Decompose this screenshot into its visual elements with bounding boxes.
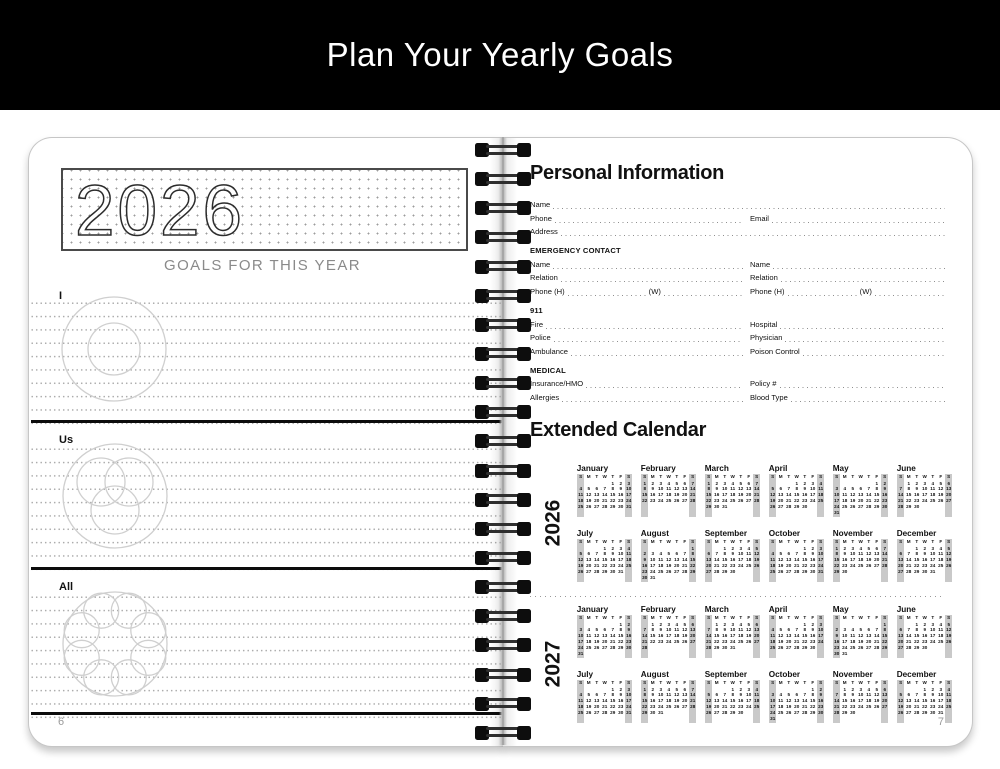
date-cell (753, 710, 761, 716)
date-cell: 30 (617, 710, 625, 716)
date-cell (929, 645, 937, 651)
concentric-circles-diagram (59, 294, 169, 404)
date-cell: 29 (609, 504, 617, 510)
date-cell (689, 575, 697, 581)
date-cell: 25 (577, 710, 585, 716)
date-cell (585, 651, 593, 657)
month-name: July (577, 529, 633, 538)
form-field: Police (530, 333, 750, 342)
spiral-tab-right (517, 434, 531, 448)
form-field: Phone (H)(W) (530, 287, 750, 296)
date-cell (753, 504, 761, 510)
date-cell: 28 (601, 504, 609, 510)
mini-month-june: JuneSMTWTFS12345678910111213141516171819… (897, 605, 953, 658)
week-row: 25262728293031 (577, 504, 633, 510)
write-in-line (568, 287, 647, 296)
write-in-line (553, 200, 945, 209)
spiral-wire (486, 559, 520, 562)
spiral-wire (486, 290, 520, 293)
mini-month-march: MarchSMTWTFS1234567891011121314151617181… (705, 605, 761, 658)
form-field: Relation (530, 273, 750, 282)
form-row: RelationRelation (530, 269, 945, 283)
spiral-wire (486, 268, 520, 271)
date-cell (865, 510, 873, 516)
write-in-line (664, 287, 743, 296)
spiral-loop (475, 405, 531, 420)
date-cell (673, 645, 681, 651)
week-row: 22232425262728 (641, 498, 697, 504)
week-row: 293031 (641, 710, 697, 716)
write-in-line (555, 214, 743, 223)
date-cell: 31 (577, 651, 585, 657)
date-cell: 29 (713, 645, 721, 651)
date-cell: 28 (641, 645, 649, 651)
field-label: Insurance/HMO (530, 379, 586, 388)
form-field: Email (750, 214, 945, 223)
date-cell: 29 (841, 710, 849, 716)
spiral-wire (486, 676, 520, 679)
date-cell: 31 (657, 710, 665, 716)
write-in-line (553, 260, 743, 269)
mini-month-june: JuneSMTWTFS12345678910111213141516171819… (897, 464, 953, 517)
page-number-right: 7 (938, 716, 944, 728)
spiral-tab-right (517, 347, 531, 361)
week-row: 2728293031 (897, 569, 953, 575)
spiral-wire (486, 378, 520, 381)
spiral-tab-right (517, 609, 531, 623)
date-cell: 31 (769, 716, 777, 722)
date-cell (737, 569, 745, 575)
date-cell (801, 716, 809, 722)
month-name: March (705, 464, 761, 473)
date-cell (657, 645, 665, 651)
date-cell: 30 (833, 651, 841, 657)
date-cell: 29 (609, 710, 617, 716)
week-row: 28293031 (705, 645, 761, 651)
mini-month-december: DecemberSMTWTFS1234567891011121314151617… (897, 670, 953, 723)
date-cell (665, 710, 673, 716)
spiral-wire (486, 239, 520, 242)
write-in-line (780, 379, 945, 388)
month-grid: SMTWTFS123456789101112131415161718192021… (897, 680, 953, 723)
week-row: 293031 (705, 504, 761, 510)
year-separator (530, 595, 945, 597)
date-cell (673, 575, 681, 581)
form-row: PolicePhysician (530, 329, 945, 343)
spiral-wire (486, 203, 520, 206)
field-label: Address (530, 227, 561, 236)
spiral-wire (486, 436, 520, 439)
spiral-tab-right (517, 172, 531, 186)
date-cell (809, 504, 817, 510)
date-cell: 30 (929, 710, 937, 716)
month-grid: SMTWTFS123456789101112131415161718192021… (833, 474, 889, 517)
write-in-line (554, 333, 743, 342)
date-cell (937, 504, 945, 510)
form-row: Phone (H)(W)Phone (H)(W) (530, 282, 945, 296)
date-cell (857, 510, 865, 516)
write-in-line (785, 333, 945, 342)
date-cell: 27 (905, 710, 913, 716)
spiral-tab-right (517, 260, 531, 274)
spiral-wire (486, 319, 520, 322)
week-row: 3031 (833, 651, 889, 657)
venn-circles-diagram (60, 441, 170, 551)
spiral-wire (486, 232, 520, 235)
field-label: Police (530, 333, 554, 342)
date-cell: 31 (817, 569, 825, 575)
date-cell: 30 (721, 645, 729, 651)
spiral-wire (486, 530, 520, 533)
week-row: 25262728293031 (769, 569, 825, 575)
date-cell: 27 (681, 498, 689, 504)
date-cell: 29 (833, 569, 841, 575)
mini-month-march: MarchSMTWTFS1234567891011121314151617181… (705, 464, 761, 517)
date-cell (753, 645, 761, 651)
months-grid: JanuarySMTWTFS12345678910111213141516171… (577, 605, 953, 723)
write-in-line (772, 214, 945, 223)
field-label: (W) (858, 287, 875, 296)
spiral-tab-right (517, 638, 531, 652)
month-name: January (577, 464, 633, 473)
field-label: Blood Type (750, 393, 791, 402)
spiral-loop (475, 464, 531, 479)
date-cell (873, 651, 881, 657)
spiral-tab-right (517, 580, 531, 594)
week-row: 282930 (897, 504, 953, 510)
date-cell: 27 (593, 504, 601, 510)
mini-month-april: AprilSMTWTFS1234567891011121314151617181… (769, 605, 825, 658)
date-cell: 29 (729, 710, 737, 716)
spiral-loop (475, 260, 531, 275)
year-label: 2026 (530, 464, 577, 582)
date-cell: 28 (601, 710, 609, 716)
month-grid: SMTWTFS123456789101112131415161718192021… (641, 680, 697, 723)
date-cell: 27 (777, 504, 785, 510)
spiral-tab-right (517, 464, 531, 478)
date-cell: 26 (585, 710, 593, 716)
year-label: 2027 (530, 605, 577, 723)
spiral-loop (475, 230, 531, 245)
field-label: Policy # (750, 379, 780, 388)
month-grid: SMTWTFS123456789101112131415161718192021… (641, 615, 697, 658)
date-cell (945, 645, 953, 651)
write-in-line (586, 379, 743, 388)
date-cell: 30 (729, 569, 737, 575)
date-cell: 28 (689, 498, 697, 504)
date-cell (921, 504, 929, 510)
date-cell: 27 (785, 645, 793, 651)
date-cell: 30 (921, 569, 929, 575)
month-grid: SMTWTFS123456789101112131415161718192021… (897, 539, 953, 582)
week-row: 262728293031 (577, 569, 633, 575)
spiral-loop (475, 668, 531, 683)
date-cell: 25 (769, 645, 777, 651)
week-row: 2627282930 (769, 504, 825, 510)
mini-month-february: FebruarySMTWTFS1234567891011121314151617… (641, 464, 697, 517)
spiral-wire (486, 261, 520, 264)
month-name: August (641, 529, 697, 538)
field-label: Physician (750, 333, 786, 342)
write-in-line (875, 287, 945, 296)
field-label: Poison Control (750, 347, 803, 356)
form-field: Fire (530, 320, 750, 329)
form-field: Ambulance (530, 347, 750, 356)
date-cell: 28 (913, 710, 921, 716)
date-cell: 26 (769, 504, 777, 510)
month-name: April (769, 605, 825, 614)
date-cell (841, 510, 849, 516)
date-cell: 26 (897, 710, 905, 716)
date-cell (665, 645, 673, 651)
form-row: Name (530, 195, 945, 209)
spiral-wire (486, 355, 520, 358)
banner-title: Plan Your Yearly Goals (327, 36, 674, 74)
month-grid: SMTWTFS123456789101112131415161718192021… (769, 474, 825, 517)
spiral-tab-right (517, 551, 531, 565)
date-cell: 27 (785, 569, 793, 575)
date-cell (937, 645, 945, 651)
form-field: Phone (530, 214, 750, 223)
date-cell: 26 (705, 710, 713, 716)
month-name: December (897, 529, 953, 538)
field-label: Phone (H) (750, 287, 788, 296)
date-cell: 30 (641, 575, 649, 581)
spiral-wire (486, 152, 520, 155)
spiral-wire (486, 647, 520, 650)
field-label: Phone (530, 214, 555, 223)
date-cell (881, 651, 889, 657)
date-cell: 31 (729, 645, 737, 651)
spiral-tab-right (517, 668, 531, 682)
spiral-wire (486, 501, 520, 504)
date-cell (849, 510, 857, 516)
field-label: Ambulance (530, 347, 571, 356)
mini-month-january: JanuarySMTWTFS12345678910111213141516171… (577, 605, 633, 658)
spiral-loop (475, 638, 531, 653)
date-cell: 30 (809, 645, 817, 651)
date-cell (681, 645, 689, 651)
date-cell: 27 (705, 569, 713, 575)
date-cell: 29 (905, 504, 913, 510)
week-row: 31 (769, 716, 825, 722)
date-cell: 28 (897, 504, 905, 510)
date-cell: 28 (785, 504, 793, 510)
mini-month-september: SeptemberSMTWTFS123456789101112131415161… (705, 670, 761, 723)
mini-month-april: AprilSMTWTFS1234567891011121314151617181… (769, 464, 825, 517)
month-name: October (769, 670, 825, 679)
month-name: September (705, 670, 761, 679)
date-cell: 27 (897, 645, 905, 651)
spiral-loop (475, 376, 531, 391)
month-name: October (769, 529, 825, 538)
date-cell (793, 716, 801, 722)
field-label: Allergies (530, 393, 562, 402)
month-grid: SMTWTFS123456789101112131415161718192021… (641, 474, 697, 517)
date-cell: 31 (625, 504, 633, 510)
field-label: Relation (530, 273, 561, 282)
month-grid: SMTWTFS123456789101112131415161718192021… (705, 539, 761, 582)
date-cell (865, 710, 873, 716)
mini-month-july: JulySMTWTFS12345678910111213141516171819… (577, 529, 633, 582)
mini-month-october: OctoberSMTWTFS12345678910111213141516171… (769, 670, 825, 723)
left-page: 2026 GOALS FOR THIS YEAR I Us (28, 137, 504, 747)
write-in-line (791, 393, 945, 402)
form-row: NameName (530, 255, 945, 269)
month-grid: SMTWTFS123456789101112131415161718192021… (769, 539, 825, 582)
date-cell (745, 569, 753, 575)
date-cell: 27 (593, 710, 601, 716)
date-cell (777, 716, 785, 722)
date-cell: 22 (641, 498, 649, 504)
section-divider (31, 567, 502, 570)
date-cell: 31 (617, 569, 625, 575)
personal-information-form: NamePhoneEmailAddressEMERGENCY CONTACTNa… (530, 195, 945, 402)
date-cell (689, 645, 697, 651)
date-cell: 30 (913, 504, 921, 510)
date-cell: 31 (721, 504, 729, 510)
write-in-line (571, 347, 743, 356)
date-cell: 26 (585, 504, 593, 510)
spiral-wire (486, 181, 520, 184)
section-i: I (29, 286, 504, 420)
spiral-loop (475, 580, 531, 595)
spiral-wire (486, 640, 520, 643)
date-cell (865, 569, 873, 575)
month-name: August (641, 670, 697, 679)
month-name: November (833, 670, 889, 679)
month-name: June (897, 605, 953, 614)
write-in-line (561, 227, 945, 236)
date-cell: 28 (721, 710, 729, 716)
write-in-line (780, 320, 945, 329)
spiral-tab-right (517, 201, 531, 215)
date-cell: 31 (937, 710, 945, 716)
date-cell: 28 (833, 710, 841, 716)
mini-month-november: NovemberSMTWTFS1234567891011121314151617… (833, 670, 889, 723)
date-cell: 30 (921, 645, 929, 651)
months-grid: JanuarySMTWTFS12345678910111213141516171… (577, 464, 953, 582)
planner-book: 2026 GOALS FOR THIS YEAR I Us (28, 137, 972, 745)
month-name: January (577, 605, 633, 614)
date-cell: 30 (649, 710, 657, 716)
week-row: 262728293031 (897, 710, 953, 716)
write-in-line (562, 393, 743, 402)
year-number: 2026 (75, 175, 295, 245)
spiral-wire (486, 705, 520, 708)
section-us: Us (29, 430, 504, 567)
date-cell: 30 (617, 504, 625, 510)
month-name: November (833, 529, 889, 538)
date-cell: 26 (777, 645, 785, 651)
month-grid: SMTWTFS123456789101112131415161718192021… (577, 539, 633, 582)
date-cell: 31 (649, 575, 657, 581)
date-cell: 30 (737, 710, 745, 716)
banner: Plan Your Yearly Goals (0, 0, 1000, 110)
personal-information-title: Personal Information (530, 162, 724, 185)
field-label: Name (530, 260, 553, 269)
month-grid: SMTWTFS123456789101112131415161718192021… (705, 680, 761, 723)
date-cell: 25 (665, 498, 673, 504)
date-cell (881, 569, 889, 575)
field-label: Name (530, 200, 553, 209)
month-grid: SMTWTFS123456789101112131415161718192021… (577, 680, 633, 723)
spiral-wire (486, 552, 520, 555)
date-cell: 30 (849, 710, 857, 716)
spiral-wire (486, 618, 520, 621)
date-cell (625, 569, 633, 575)
date-cell: 29 (721, 569, 729, 575)
spiral-wire (486, 669, 520, 672)
date-cell: 29 (601, 569, 609, 575)
spiral-tab-right (517, 522, 531, 536)
date-cell (945, 710, 953, 716)
date-cell: 31 (625, 710, 633, 716)
spiral-wire (486, 472, 520, 475)
month-grid: SMTWTFS123456789101112131415161718192021… (705, 474, 761, 517)
week-row: 27282930 (897, 645, 953, 651)
week-row: 3031 (641, 575, 697, 581)
date-cell (625, 651, 633, 657)
date-cell: 31 (929, 569, 937, 575)
spiral-tab-right (517, 405, 531, 419)
date-cell (593, 651, 601, 657)
spiral-wire (486, 210, 520, 213)
date-cell (657, 575, 665, 581)
date-cell: 28 (793, 569, 801, 575)
date-cell (737, 645, 745, 651)
date-cell (785, 716, 793, 722)
week-row: 27282930 (705, 569, 761, 575)
form-field: Blood Type (750, 393, 945, 402)
date-cell: 25 (769, 569, 777, 575)
form-section-header: 911 (530, 301, 945, 315)
date-cell (673, 710, 681, 716)
month-grid: SMTWTFS123456789101112131415161718192021… (769, 615, 825, 658)
date-cell: 28 (793, 645, 801, 651)
date-cell (809, 716, 817, 722)
date-cell: 27 (585, 569, 593, 575)
month-name: February (641, 464, 697, 473)
week-row: 25262728293031 (577, 710, 633, 716)
field-label: Relation (750, 273, 781, 282)
date-cell: 28 (705, 645, 713, 651)
form-field: Poison Control (750, 347, 945, 356)
month-name: May (833, 464, 889, 473)
month-name: July (577, 670, 633, 679)
form-field: Relation (750, 273, 945, 282)
bottom-divider (31, 712, 502, 715)
month-grid: SMTWTFS123456789101112131415161718192021… (577, 474, 633, 517)
date-cell: 31 (841, 651, 849, 657)
form-row: Address (530, 223, 945, 237)
field-label: Phone (H) (530, 287, 568, 296)
spiral-loop (475, 172, 531, 187)
spiral-tab-right (517, 143, 531, 157)
field-label: Email (750, 214, 772, 223)
date-cell: 30 (841, 569, 849, 575)
date-cell: 30 (801, 504, 809, 510)
spiral-wire (486, 611, 520, 614)
spiral-wire (486, 443, 520, 446)
spiral-wire (486, 407, 520, 410)
mini-month-august: AugustSMTWTFS123456789101112131415161718… (641, 670, 697, 723)
mini-month-january: JanuarySMTWTFS12345678910111213141516171… (577, 464, 633, 517)
date-cell: 26 (777, 569, 785, 575)
spiral-loop (475, 347, 531, 362)
spiral-loop (475, 726, 531, 741)
date-cell (753, 569, 761, 575)
